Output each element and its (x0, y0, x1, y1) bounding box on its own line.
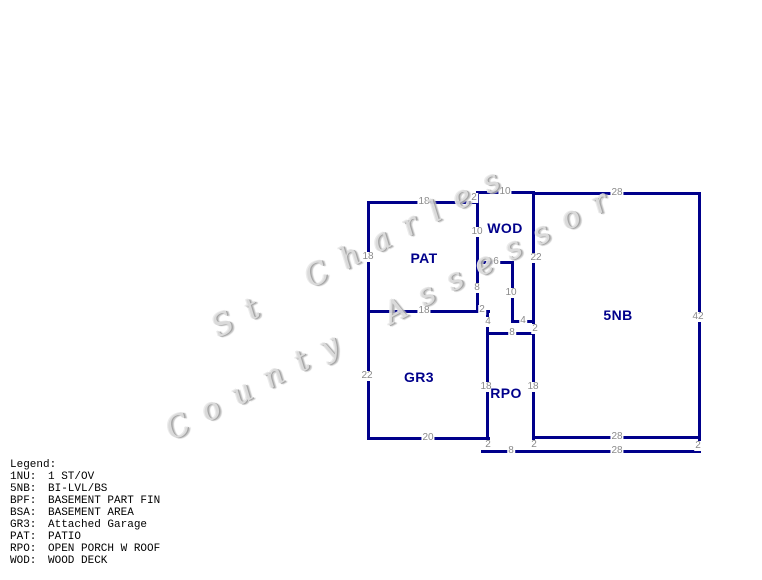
dimension-label: 28 (610, 446, 623, 456)
legend-row: PAT:PATIO (10, 531, 160, 543)
dimension-label: 8 (473, 283, 481, 293)
dimension-label: 18 (361, 252, 374, 262)
legend-row: BPF:BASEMENT PART FIN (10, 495, 160, 507)
legend: Legend: 1NU:1 ST/OV5NB:BI-LVL/BSBPF:BASE… (10, 459, 160, 567)
dimension-label: 10 (470, 227, 483, 237)
area-label-wod: WOD (487, 220, 522, 236)
legend-description: 1 ST/OV (48, 471, 94, 483)
area-label-pat: PAT (410, 250, 437, 266)
dimension-label: 18 (417, 197, 430, 207)
dimension-label: 2 (470, 193, 478, 203)
dimension-label: 10 (504, 288, 517, 298)
legend-description: BASEMENT AREA (48, 507, 134, 519)
dimension-label: 10 (498, 187, 511, 197)
dimension-label: 8 (508, 328, 516, 338)
dimension-label: 4 (519, 316, 527, 326)
legend-row: 1NU:1 ST/OV (10, 471, 160, 483)
dimension-label: 2 (484, 440, 492, 450)
legend-title: Legend: (10, 459, 160, 471)
dimension-label: 2 (694, 441, 702, 451)
legend-description: PATIO (48, 531, 81, 543)
legend-code: 1NU: (10, 471, 48, 483)
legend-rows: 1NU:1 ST/OV5NB:BI-LVL/BSBPF:BASEMENT PAR… (10, 471, 160, 567)
legend-code: BSA: (10, 507, 48, 519)
wall-segment (367, 201, 370, 440)
dimension-label: 18 (526, 382, 539, 392)
area-label-gr3: GR3 (404, 369, 434, 385)
dimension-label: 2 (531, 324, 539, 334)
area-label-5nb: 5NB (603, 307, 632, 323)
dimension-label: 8 (507, 446, 515, 456)
legend-code: RPO: (10, 543, 48, 555)
dimension-label: 22 (529, 253, 542, 263)
wall-segment (476, 191, 479, 313)
legend-description: WOOD DECK (48, 555, 107, 567)
legend-description: BASEMENT PART FIN (48, 495, 160, 507)
dimension-label: 22 (360, 371, 373, 381)
dimension-label: 28 (610, 188, 623, 198)
area-label-rpo: RPO (490, 385, 522, 401)
dimension-label: 6 (492, 257, 500, 267)
wall-segment (486, 310, 489, 440)
legend-description: BI-LVL/BS (48, 483, 107, 495)
dimension-label: 20 (421, 433, 434, 443)
dimension-label: 18 (417, 306, 430, 316)
legend-description: OPEN PORCH W ROOF (48, 543, 160, 555)
legend-row: WOD:WOOD DECK (10, 555, 160, 567)
legend-code: 5NB: (10, 483, 48, 495)
dimension-label: 2 (478, 305, 486, 315)
legend-code: GR3: (10, 519, 48, 531)
legend-code: WOD: (10, 555, 48, 567)
dimension-label: 28 (610, 432, 623, 442)
legend-description: Attached Garage (48, 519, 147, 531)
legend-row: BSA:BASEMENT AREA (10, 507, 160, 519)
wall-segment (532, 191, 535, 439)
legend-row: RPO:OPEN PORCH W ROOF (10, 543, 160, 555)
legend-code: PAT: (10, 531, 48, 543)
dimension-label: 42 (691, 312, 704, 322)
legend-code: BPF: (10, 495, 48, 507)
legend-row: 5NB:BI-LVL/BS (10, 483, 160, 495)
dimension-label: 2 (530, 440, 538, 450)
dimension-label: 4 (484, 317, 492, 327)
assessor-sketch-page: 1021818106822104228421824822181820282282… (0, 0, 762, 580)
legend-row: GR3:Attached Garage (10, 519, 160, 531)
